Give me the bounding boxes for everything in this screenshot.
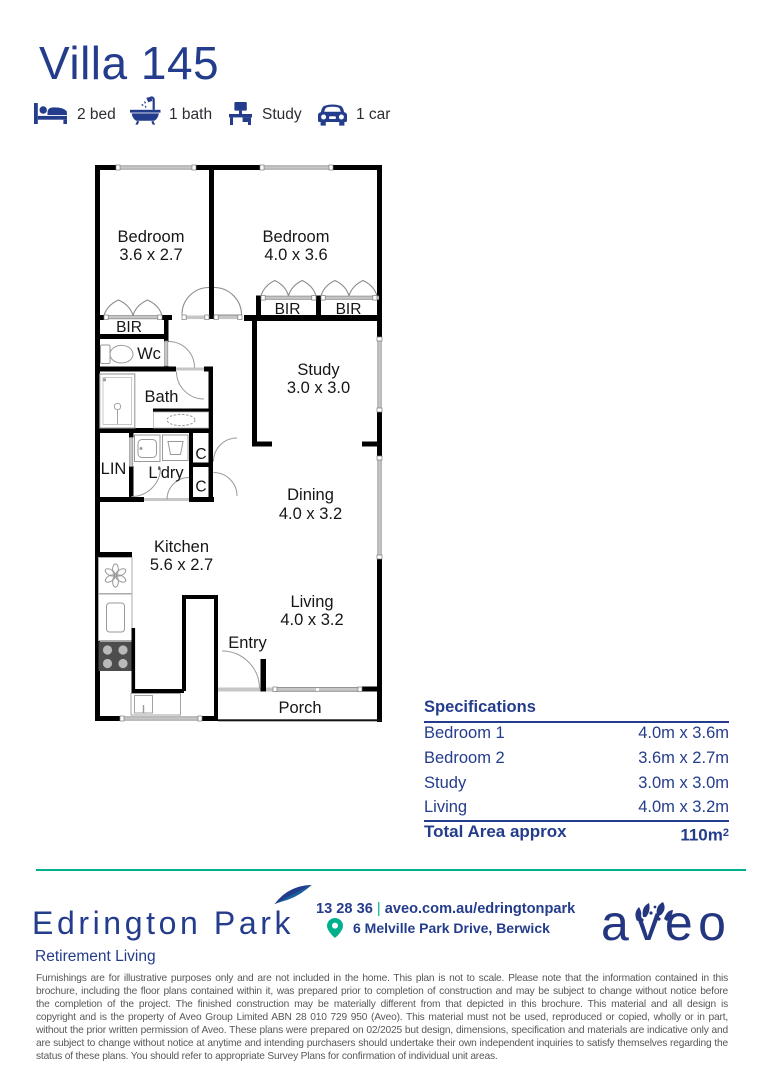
svg-text:Dining: Dining [287,486,334,504]
svg-text:C: C [195,479,206,496]
svg-text:C: C [195,446,206,463]
svg-text:3.6 x 2.7: 3.6 x 2.7 [119,246,182,264]
svg-text:LIN: LIN [101,460,127,478]
svg-text:BIR: BIR [116,319,142,336]
svg-text:Porch: Porch [278,699,321,717]
svg-text:Entry: Entry [228,634,267,652]
svg-text:3.0 x 3.0: 3.0 x 3.0 [287,379,350,397]
svg-text:Bedroom: Bedroom [118,228,185,246]
svg-text:Kitchen: Kitchen [154,538,209,556]
svg-text:5.6 x 2.7: 5.6 x 2.7 [150,556,213,574]
svg-text:Study: Study [297,361,340,379]
svg-text:L'dry: L'dry [148,464,184,482]
svg-text:Wc: Wc [137,345,161,363]
svg-text:Bath: Bath [145,388,179,406]
svg-text:Living: Living [290,593,333,611]
svg-text:BIR: BIR [275,301,301,318]
svg-text:4.0 x 3.2: 4.0 x 3.2 [280,611,343,629]
svg-text:4.0 x 3.6: 4.0 x 3.6 [264,246,327,264]
svg-text:4.0 x 3.2: 4.0 x 3.2 [279,505,342,523]
svg-text:BIR: BIR [336,301,362,318]
svg-text:Bedroom: Bedroom [263,228,330,246]
